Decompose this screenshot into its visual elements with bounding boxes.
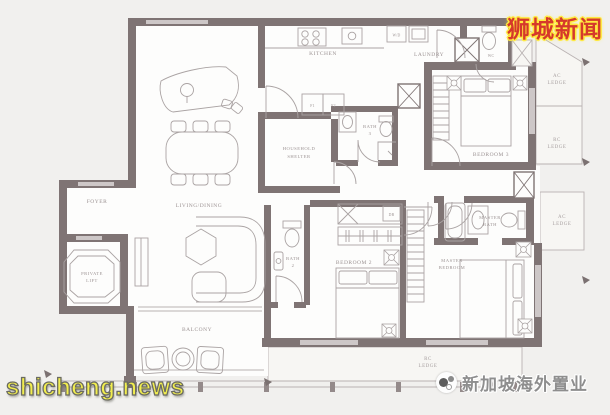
watermark-shicheng-news-cn: 狮城新闻 — [507, 10, 603, 44]
room-label-wc: WC — [488, 54, 495, 58]
room-label-laundry: LAUNDRY — [414, 52, 444, 58]
room-label-bath3-1: BATH — [363, 124, 377, 129]
watermark-publisher: 新加坡海外置业 — [436, 370, 588, 395]
floor-plan-svg: FOYER PRIVATE LIFT LIVING/DINING BALCONY… — [0, 0, 610, 415]
label-ac-ledge-top-2: LEDGE — [548, 81, 567, 86]
publisher-name: 新加坡海外置业 — [462, 370, 588, 395]
room-label-bedroom3: BEDROOM 3 — [473, 152, 509, 158]
room-label-private-lift-1: PRIVATE — [81, 271, 103, 276]
label-ac-ledge-mid-2: LEDGE — [553, 222, 572, 227]
label-ac-ledge-top-1: AC — [553, 74, 561, 79]
label-rc-ledge-bottom-1: RC — [424, 357, 432, 362]
room-label-bath2-1: BATH — [286, 256, 300, 261]
nightstand-icon — [516, 242, 531, 257]
label-rc-ledge-bottom-2: LEDGE — [419, 364, 438, 369]
publisher-logo-icon — [436, 372, 457, 393]
label-f2: F2 — [331, 104, 335, 108]
label-db: DB — [389, 213, 395, 217]
label-rc-ledge-right-1: RC — [553, 138, 561, 143]
room-label-kitchen: KITCHEN — [309, 51, 337, 57]
room-label-private-lift-2: LIFT — [86, 278, 98, 283]
nightstand-icon — [518, 319, 532, 333]
room-label-master-bedroom-1: MASTER — [441, 258, 463, 263]
room-label-master-bedroom-2: BEDROOM — [439, 265, 465, 270]
label-f1: F1 — [310, 104, 314, 108]
ac-ledge-mid-outline — [540, 192, 584, 250]
room-label-master-bath-1: MASTER — [479, 215, 501, 220]
watermark-shicheng-news-url: shicheng.news — [6, 374, 185, 402]
room-label-bath3-2: 3 — [369, 131, 372, 136]
room-label-balcony: BALCONY — [182, 327, 212, 333]
room-label-foyer: FOYER — [87, 199, 108, 205]
nightstand-icon — [513, 76, 527, 90]
floor-plan-screenshot: FOYER PRIVATE LIFT LIVING/DINING BALCONY… — [0, 0, 610, 415]
wall-light-icon — [382, 324, 396, 337]
nightstand-icon — [384, 250, 399, 265]
room-label-household-shelter-2: SHELTER — [287, 154, 311, 159]
room-label-household-shelter-1: HOUSEHOLD — [283, 146, 316, 151]
label-wd: W/D — [393, 34, 401, 38]
room-label-master-bath-2: BATH — [483, 222, 497, 227]
room-label-living-dining: LIVING/DINING — [176, 203, 223, 209]
label-rc-ledge-right-2: LEDGE — [548, 145, 567, 150]
room-label-bath2-2: 2 — [292, 263, 295, 268]
label-ac-ledge-mid-1: AC — [558, 215, 566, 220]
room-label-bedroom2: BEDROOM 2 — [336, 260, 372, 266]
nightstand-icon — [447, 76, 461, 90]
